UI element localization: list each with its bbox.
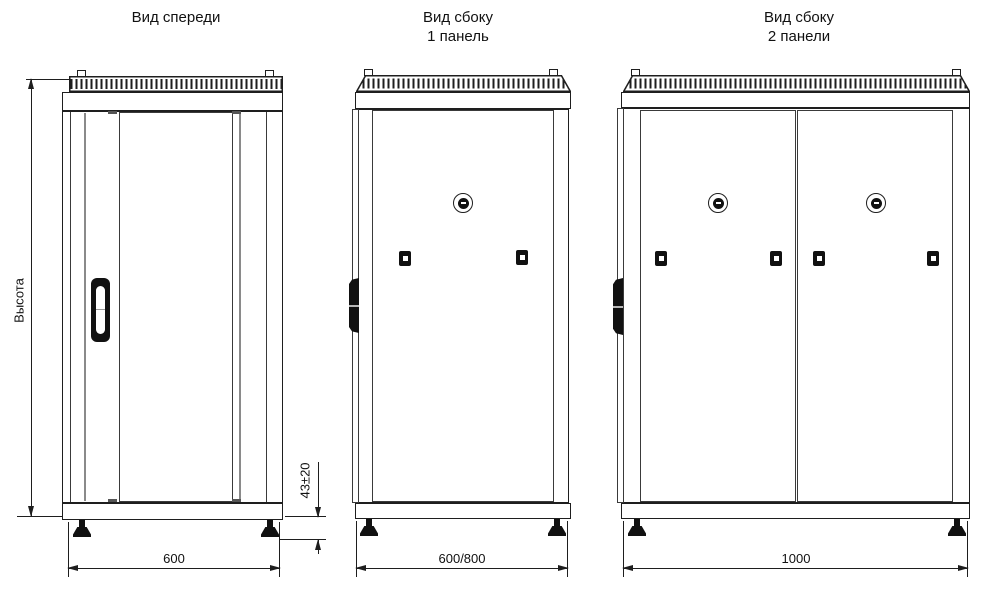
vent-grille — [69, 76, 283, 92]
height-dimension-label: Высота — [12, 256, 27, 346]
latch-icon — [399, 251, 411, 266]
lock-icon — [866, 193, 886, 213]
frame-line — [70, 112, 71, 502]
side-panel — [372, 110, 554, 502]
leveling-foot — [73, 520, 91, 537]
side2-title-line1: Вид сбоку — [699, 8, 899, 27]
side1-title-line1: Вид сбоку — [358, 8, 558, 27]
leveling-foot — [628, 519, 646, 536]
base-band — [62, 503, 283, 520]
side1-title-line2: 1 панель — [358, 27, 558, 46]
vent-grille — [356, 75, 571, 92]
latch-icon — [655, 251, 667, 266]
door-bracket — [108, 111, 117, 114]
top-band — [62, 92, 283, 111]
latch-icon — [813, 251, 825, 266]
lock-icon — [453, 193, 473, 213]
latch-icon — [927, 251, 939, 266]
lock-icon — [708, 193, 728, 213]
width-dimension-label: 600/800 — [412, 551, 512, 566]
leveling-foot — [360, 519, 378, 536]
door-handle-side — [349, 278, 359, 333]
door-bracket — [232, 111, 241, 114]
door-edge-line — [239, 113, 241, 501]
foot-dimension-line — [318, 540, 319, 554]
leveling-foot — [948, 519, 966, 536]
side-panel-left — [640, 110, 796, 502]
latch-icon — [516, 250, 528, 265]
width-dimension-line — [68, 568, 280, 569]
vent-grille — [623, 75, 970, 92]
door-bracket — [108, 499, 117, 502]
cabinet-technical-drawing: Вид спереди — [0, 0, 993, 596]
width-dimension-label: 1000 — [746, 551, 846, 566]
height-dimension-line — [31, 79, 32, 516]
leveling-foot — [548, 519, 566, 536]
door-handle-side — [613, 278, 623, 335]
top-band — [621, 92, 970, 108]
top-band — [355, 92, 571, 109]
extension-line — [17, 516, 62, 517]
base-band — [355, 503, 571, 519]
side2-title-line2: 2 панели — [699, 27, 899, 46]
door-edge-line — [84, 113, 86, 501]
door-glass-panel — [119, 112, 233, 502]
base-band — [621, 503, 970, 519]
door-handle — [91, 278, 110, 342]
side-panel-right — [797, 110, 953, 502]
front-view-title: Вид спереди — [76, 8, 276, 27]
leveling-foot — [261, 520, 279, 537]
foot-dimension-label: 43±20 — [298, 446, 313, 516]
width-dimension-label: 600 — [124, 551, 224, 566]
frame-line — [266, 112, 267, 502]
latch-icon — [770, 251, 782, 266]
door-bracket — [232, 499, 241, 502]
foot-dimension-line — [318, 462, 319, 517]
width-dimension-line — [623, 568, 968, 569]
width-dimension-line — [356, 568, 568, 569]
